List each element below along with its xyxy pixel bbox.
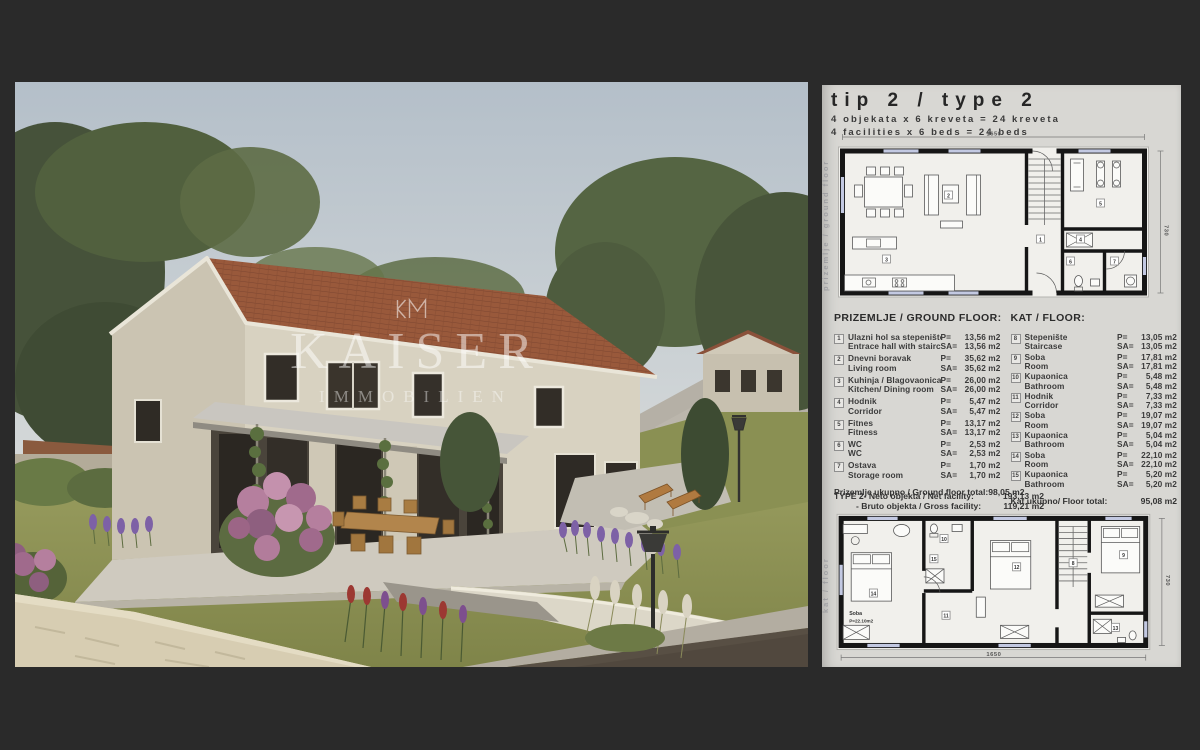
room-name-en: Entrace hall with staircase [848, 342, 941, 351]
ground-floor-heading: PRIZEMLJE / GROUND FLOOR: [834, 312, 1001, 324]
room-number: 9 [1011, 354, 1021, 364]
room-row: 15 Kupaonica Bathroom P=5,20 m2 SA=5,20 … [1011, 470, 1178, 489]
room-number: 12 [1011, 412, 1021, 422]
room-area-sa: 5,20 m2 [1146, 480, 1177, 489]
room-name-en: Fitness [848, 428, 941, 437]
capacity-line-hr: 4 objekata x 6 kreveta = 24 kreveta [831, 114, 1060, 125]
room-number: 6 [834, 441, 844, 451]
room-number: 7 [834, 462, 844, 472]
type-title: tip 2 / type 2 [831, 90, 1060, 112]
svg-text:8: 8 [1072, 561, 1075, 567]
room-number: 1 [834, 334, 844, 344]
floor-room-list: KAT / FLOOR: 8 Stepenište Staircase P=13… [1011, 312, 1178, 506]
room-number: 5 [834, 420, 844, 430]
room-name-en: WC [848, 449, 941, 458]
room-area-sa: 13,17 m2 [965, 428, 1001, 437]
svg-text:4: 4 [1079, 237, 1082, 243]
floor-heading: KAT / FLOOR: [1011, 312, 1178, 324]
room-row: 10 Kupaonica Bathroom P=5,48 m2 SA=5,48 … [1011, 372, 1178, 391]
room-number: 14 [1011, 452, 1021, 462]
room-name-en: Bathroom [1025, 480, 1118, 489]
room-row: 9 Soba Room P=17,81 m2 SA=17,81 m2 [1011, 353, 1178, 372]
room-row: 2 Dnevni boravak Living room P=35,62 m2 … [834, 354, 1001, 373]
room-name-en: Bathroom [1025, 440, 1118, 449]
exterior-render-photo: KAISER IMMOBILIEN [15, 82, 808, 667]
room-number: 8 [1011, 334, 1021, 344]
net-label: TYPE 2- Neto objekta / Net facility: [834, 491, 974, 501]
svg-text:9: 9 [1122, 553, 1125, 559]
room-number: 13 [1011, 432, 1021, 442]
room-number: 4 [834, 398, 844, 408]
room-number: 15 [1011, 471, 1021, 481]
svg-text:6: 6 [1069, 259, 1072, 265]
room-area-sa: 26,00 m2 [965, 385, 1001, 394]
room-area-sa: 7,33 m2 [1146, 401, 1177, 410]
room-name-en: Room [1025, 421, 1118, 430]
room-number: 10 [1011, 373, 1021, 383]
room-name-en: Corridor [1025, 401, 1118, 410]
room-row: 3 Kuhinja / Blagovaonica Kitchen/ Dining… [834, 376, 1001, 395]
room-label-area: P=22.10m2 [849, 618, 873, 623]
real-estate-listing-collage: KAISER IMMOBILIEN tip 2 / type 2 4 objek… [0, 0, 1200, 750]
room-name-en: Bathroom [1025, 382, 1118, 391]
svg-text:2: 2 [947, 193, 950, 199]
svg-text:12: 12 [1014, 565, 1020, 571]
room-number: 3 [834, 377, 844, 387]
render-scene [15, 82, 808, 667]
dining-chairs-front [351, 534, 421, 554]
floor-plan-sheet: tip 2 / type 2 4 objekata x 6 kreveta = … [822, 85, 1181, 667]
room-area-sa: 13,05 m2 [1141, 342, 1177, 351]
svg-text:10: 10 [941, 537, 947, 543]
room-name-en: Living room [848, 364, 941, 373]
ground-floor-plan: 1650 730 [827, 129, 1176, 310]
svg-text:13: 13 [1113, 626, 1119, 632]
room-row: 12 Soba Room P=19,07 m2 SA=19,07 m2 [1011, 411, 1178, 430]
room-name-en: Room [1025, 460, 1118, 469]
room-area-sa: 5,47 m2 [969, 407, 1000, 416]
dim-height: 730 [1163, 225, 1169, 236]
gross-value: 119,21 m2 [1003, 501, 1044, 511]
room-name-en: Room [1025, 362, 1118, 371]
room-area-sa: 2,53 m2 [969, 449, 1000, 458]
room-area-sa: 22,10 m2 [1141, 460, 1177, 469]
room-area-sa: 35,62 m2 [965, 364, 1001, 373]
type-summary: TYPE 2- Neto objekta / Net facility: 193… [834, 491, 1044, 511]
room-area-sa: 19,07 m2 [1141, 421, 1177, 430]
svg-text:11: 11 [943, 614, 949, 620]
room-area-sa: 13,56 m2 [965, 342, 1001, 351]
room-area-sa: 5,48 m2 [1146, 382, 1177, 391]
svg-text:5: 5 [1099, 201, 1102, 207]
net-value: 193,13 m2 [1003, 491, 1044, 501]
ground-floor-room-list: PRIZEMLJE / GROUND FLOOR: 1 Ulazni hol s… [834, 312, 1001, 506]
room-row: 8 Stepenište Staircase P=13,05 m2 SA=13,… [1011, 333, 1178, 352]
svg-text:1: 1 [1039, 237, 1042, 243]
svg-text:15: 15 [931, 557, 937, 563]
room-area-sa: 5,04 m2 [1146, 440, 1177, 449]
upper-floor-plan: 1650 730 [827, 512, 1176, 664]
room-name-en: Staircase [1025, 342, 1118, 351]
room-row: 11 Hodnik Corridor P=7,33 m2 SA=7,33 m2 [1011, 392, 1178, 411]
svg-text:14: 14 [871, 591, 877, 597]
svg-text:7: 7 [1113, 259, 1116, 265]
dim-width: 1650 [987, 132, 1002, 138]
room-row: 13 Kupaonica Bathroom P=5,04 m2 SA=5,04 … [1011, 431, 1178, 450]
room-row: 5 Fitnes Fitness P=13,17 m2 SA=13,17 m2 [834, 419, 1001, 438]
room-name-en: Storage room [848, 471, 941, 480]
room-name-en: Kitchen/ Dining room [848, 385, 941, 394]
room-number: 11 [1011, 393, 1021, 403]
room-row: 1 Ulazni hol sa stepeništem Entrace hall… [834, 333, 1001, 352]
gable-window [135, 400, 161, 442]
room-row: 4 Hodnik Corridor P=5,47 m2 SA=5,47 m2 [834, 397, 1001, 416]
room-number: 2 [834, 355, 844, 365]
room-label-soba: Soba [849, 611, 862, 617]
room-row: 6 WC WC P=2,53 m2 SA=2,53 m2 [834, 440, 1001, 459]
room-row: 7 Ostava Storage room P=1,70 m2 SA=1,70 … [834, 461, 1001, 480]
room-name-en: Corridor [848, 407, 941, 416]
room-area-sa: 17,81 m2 [1141, 362, 1177, 371]
dim-width: 1650 [986, 652, 1001, 658]
gross-label: - Bruto objekta / Gross facility: [834, 501, 981, 511]
room-area-sa: 1,70 m2 [969, 471, 1000, 480]
room-row: 14 Soba Room P=22,10 m2 SA=22,10 m2 [1011, 451, 1178, 470]
dim-height: 730 [1164, 575, 1170, 587]
room-lists: PRIZEMLJE / GROUND FLOOR: 1 Ulazni hol s… [834, 312, 1177, 506]
svg-text:3: 3 [885, 257, 888, 263]
